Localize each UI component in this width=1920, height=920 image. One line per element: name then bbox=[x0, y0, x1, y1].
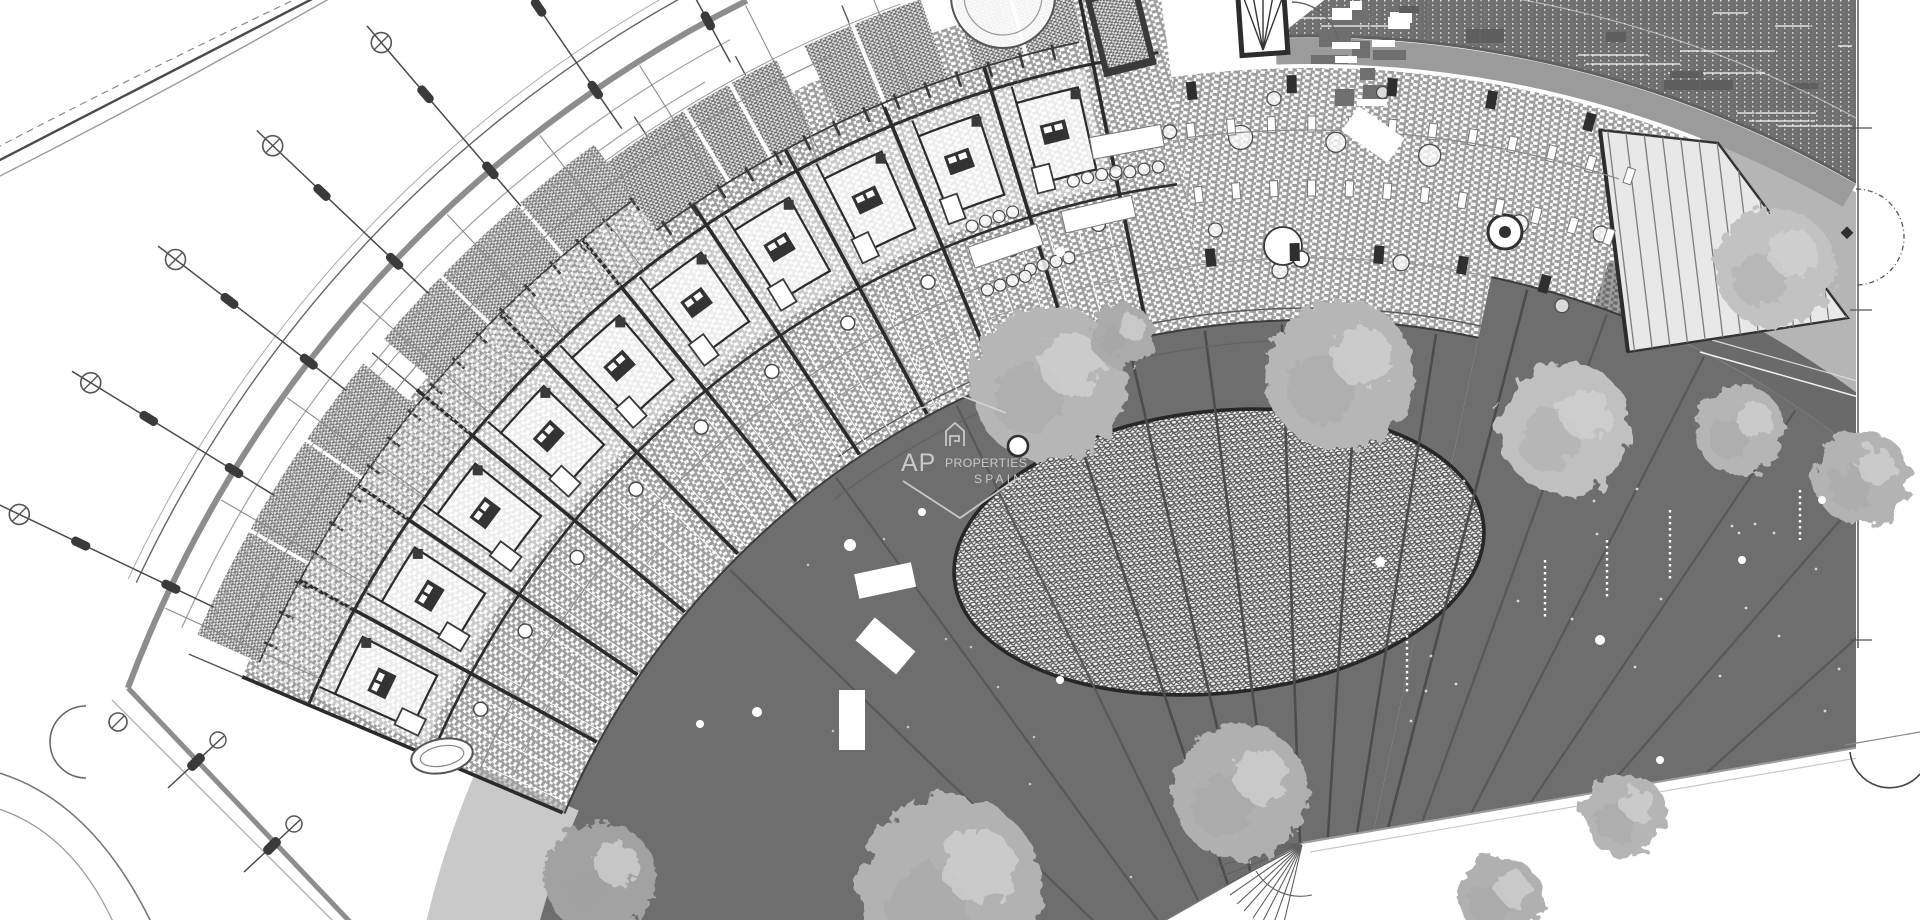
svg-text:AP: AP bbox=[901, 449, 936, 477]
svg-text:PROPERTIES: PROPERTIES bbox=[945, 456, 1027, 470]
svg-text:SPAIN: SPAIN bbox=[974, 472, 1025, 486]
